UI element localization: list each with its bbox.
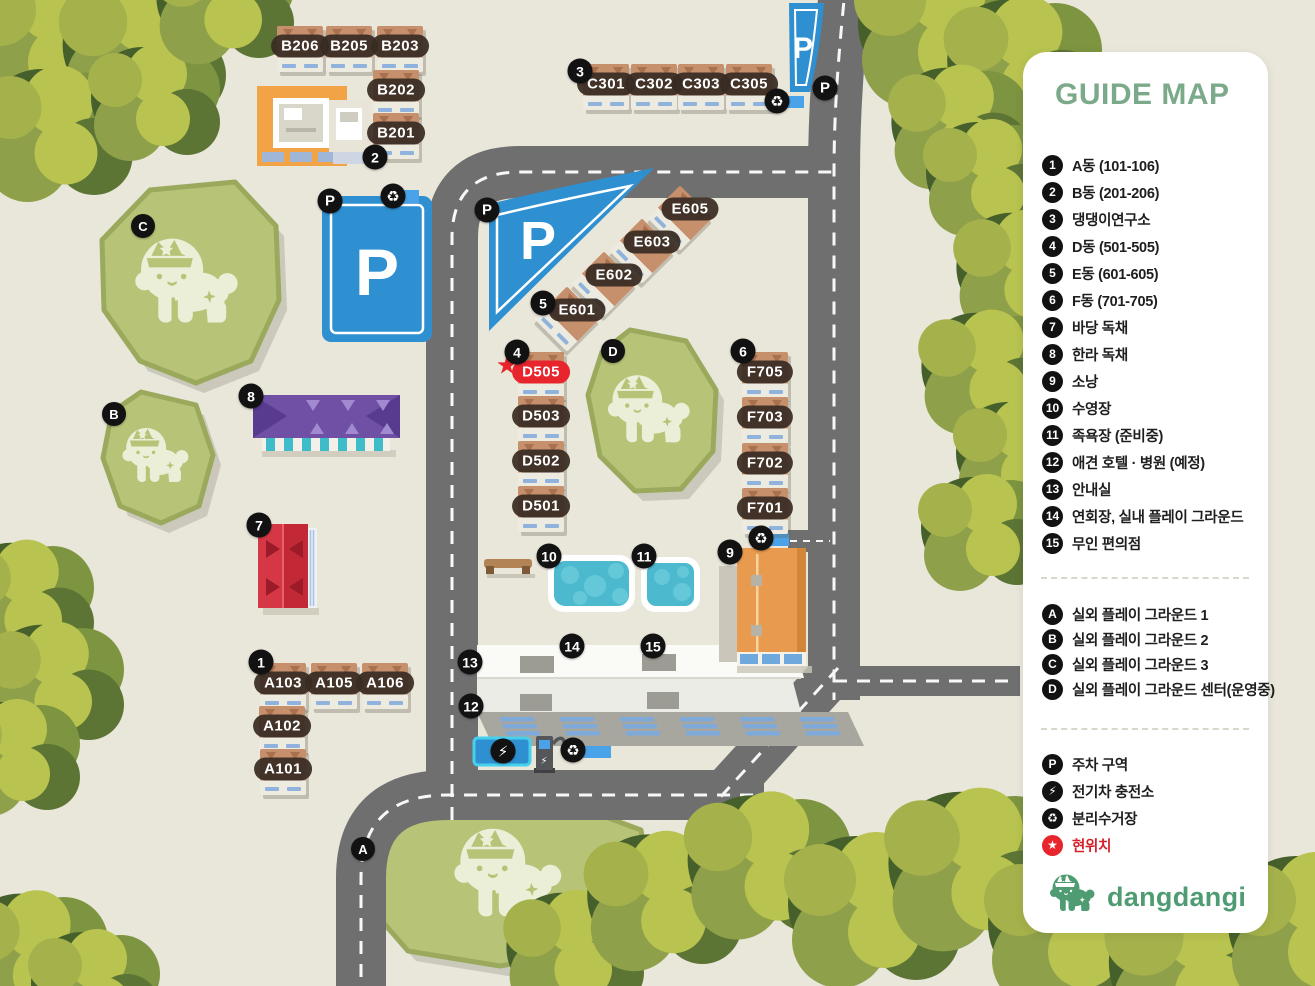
legend-item-5-icon: 5 bbox=[1042, 263, 1063, 284]
recycling-icon-3: ♻ bbox=[749, 526, 774, 551]
legend-item-a-label: 실외 플레이 그라운드 1 bbox=[1072, 604, 1208, 625]
legend-item-2: 2B동 (201-206) bbox=[1042, 181, 1159, 203]
cabin-label-E602: E602 bbox=[585, 264, 642, 287]
legend-item-current-location-icon: ★ bbox=[1042, 835, 1063, 856]
marker-13: 13 bbox=[458, 650, 483, 675]
cabin-label-A101: A101 bbox=[254, 758, 312, 781]
cabin-label-E603: E603 bbox=[623, 231, 680, 254]
legend-item-7: 7바당 독채 bbox=[1042, 316, 1128, 338]
legend-item-9: 9소낭 bbox=[1042, 370, 1098, 392]
legend-item-5: 5E동 (601-605) bbox=[1042, 262, 1158, 284]
legend-item-12-icon: 12 bbox=[1042, 452, 1063, 473]
ev-charger-icon-1: ⚡ bbox=[491, 739, 516, 764]
legend-item-parking-label: 주차 구역 bbox=[1072, 754, 1128, 775]
marker-7: 7 bbox=[247, 513, 272, 538]
recycling-icon-4: ♻ bbox=[561, 738, 586, 763]
legend-item-d-label: 실외 플레이 그라운드 센터(운영중) bbox=[1072, 679, 1275, 700]
legend-item-b-icon: B bbox=[1042, 629, 1063, 650]
brand-logo: dangdangi bbox=[1049, 870, 1246, 925]
legend-item-1: 1A동 (101-106) bbox=[1042, 154, 1159, 176]
marker-8: 8 bbox=[239, 384, 264, 409]
legend-item-9-icon: 9 bbox=[1042, 371, 1063, 392]
cabin-label-B202: B202 bbox=[367, 79, 425, 102]
guide-map-title: GUIDE MAP bbox=[1055, 78, 1230, 112]
marker-a: A bbox=[351, 837, 375, 861]
legend-item-d-icon: D bbox=[1042, 679, 1063, 700]
legend-item-c: C실외 플레이 그라운드 3 bbox=[1042, 653, 1208, 675]
legend-item-3-icon: 3 bbox=[1042, 209, 1063, 230]
guide-map-page: P P P bbox=[0, 0, 1315, 986]
legend-item-12: 12애견 호텔 · 병원 (예정) bbox=[1042, 451, 1205, 473]
cabin-label-B205: B205 bbox=[320, 35, 378, 58]
cabin-label-E601: E601 bbox=[548, 299, 605, 322]
cabin-label-A103: A103 bbox=[254, 672, 312, 695]
legend-item-10-icon: 10 bbox=[1042, 398, 1063, 419]
legend-item-ev-charger-icon: ⚡ bbox=[1042, 781, 1063, 802]
legend-item-a: A실외 플레이 그라운드 1 bbox=[1042, 603, 1208, 625]
marker-6: 6 bbox=[731, 339, 756, 364]
legend-item-10-label: 수영장 bbox=[1072, 398, 1111, 419]
cabin-label-B201: B201 bbox=[367, 122, 425, 145]
legend-item-4-icon: 4 bbox=[1042, 236, 1063, 257]
legend-item-8-label: 한라 독채 bbox=[1072, 344, 1128, 365]
legend-item-current-location-label: 현위치 bbox=[1072, 835, 1111, 856]
legend-item-15: 15무인 편의점 bbox=[1042, 532, 1141, 554]
legend-divider-2 bbox=[1041, 728, 1249, 730]
legend-item-b-label: 실외 플레이 그라운드 2 bbox=[1072, 629, 1208, 650]
legend-item-13-label: 안내실 bbox=[1072, 479, 1111, 500]
legend-item-3: 3댕댕이연구소 bbox=[1042, 208, 1150, 230]
legend-item-b: B실외 플레이 그라운드 2 bbox=[1042, 628, 1208, 650]
legend-item-parking: P주차 구역 bbox=[1042, 753, 1128, 775]
marker-11: 11 bbox=[632, 544, 657, 569]
cabin-label-F702: F702 bbox=[737, 452, 793, 475]
legend-item-15-label: 무인 편의점 bbox=[1072, 533, 1141, 554]
legend-item-7-icon: 7 bbox=[1042, 317, 1063, 338]
legend-item-current-location: ★현위치 bbox=[1042, 834, 1111, 856]
legend-item-recycling-label: 분리수거장 bbox=[1072, 808, 1137, 829]
marker-15: 15 bbox=[641, 634, 666, 659]
legend-item-1-label: A동 (101-106) bbox=[1072, 155, 1159, 176]
guide-panel: GUIDE MAP 1A동 (101-106)2B동 (201-206)3댕댕이… bbox=[1023, 52, 1268, 933]
map-overlay: A103A105A106A102A101B206B205B203B202B201… bbox=[0, 0, 1015, 986]
legend-item-14-label: 연회장, 실내 플레이 그라운드 bbox=[1072, 506, 1243, 527]
legend-item-2-label: B동 (201-206) bbox=[1072, 182, 1159, 203]
legend-item-1-icon: 1 bbox=[1042, 155, 1063, 176]
legend-item-5-label: E동 (601-605) bbox=[1072, 263, 1158, 284]
legend-item-4-label: D동 (501-505) bbox=[1072, 236, 1159, 257]
marker-2: 2 bbox=[363, 145, 388, 170]
legend-item-12-label: 애견 호텔 · 병원 (예정) bbox=[1072, 452, 1205, 473]
marker-d: D bbox=[601, 339, 625, 363]
marker-3: 3 bbox=[568, 59, 593, 84]
legend-item-6-icon: 6 bbox=[1042, 290, 1063, 311]
parking-badge-1: P bbox=[318, 189, 343, 214]
legend-item-recycling-icon: ♻ bbox=[1042, 808, 1063, 829]
legend-item-14: 14연회장, 실내 플레이 그라운드 bbox=[1042, 505, 1243, 527]
marker-12: 12 bbox=[459, 694, 484, 719]
cabin-label-A106: A106 bbox=[356, 672, 414, 695]
recycling-icon-1: ♻ bbox=[381, 184, 406, 209]
legend-item-8-icon: 8 bbox=[1042, 344, 1063, 365]
cabin-label-A105: A105 bbox=[305, 672, 363, 695]
legend-divider-1 bbox=[1041, 577, 1249, 579]
cabin-label-F705: F705 bbox=[737, 361, 793, 384]
legend-item-11-icon: 11 bbox=[1042, 425, 1063, 446]
marker-14: 14 bbox=[560, 634, 585, 659]
legend-item-11-label: 족욕장 (준비중) bbox=[1072, 425, 1163, 446]
legend-item-parking-icon: P bbox=[1042, 754, 1063, 775]
legend-item-2-icon: 2 bbox=[1042, 182, 1063, 203]
legend-item-14-icon: 14 bbox=[1042, 506, 1063, 527]
marker-9: 9 bbox=[718, 540, 743, 565]
legend-item-d: D실외 플레이 그라운드 센터(운영중) bbox=[1042, 678, 1275, 700]
legend-item-10: 10수영장 bbox=[1042, 397, 1111, 419]
cabin-label-D505: D505 bbox=[512, 361, 570, 384]
parking-badge-3: P bbox=[813, 76, 838, 101]
legend-item-7-label: 바당 독채 bbox=[1072, 317, 1128, 338]
legend-item-c-icon: C bbox=[1042, 654, 1063, 675]
marker-1: 1 bbox=[249, 650, 274, 675]
legend-item-9-label: 소낭 bbox=[1072, 371, 1098, 392]
legend-item-6-label: F동 (701-705) bbox=[1072, 290, 1158, 311]
legend-item-ev-charger: ⚡전기차 충전소 bbox=[1042, 780, 1154, 802]
marker-10: 10 bbox=[537, 544, 562, 569]
cabin-label-A102: A102 bbox=[253, 715, 311, 738]
legend-item-11: 11족욕장 (준비중) bbox=[1042, 424, 1163, 446]
legend-item-ev-charger-label: 전기차 충전소 bbox=[1072, 781, 1154, 802]
parking-badge-2: P bbox=[475, 198, 500, 223]
legend-item-3-label: 댕댕이연구소 bbox=[1072, 209, 1150, 230]
legend-item-recycling: ♻분리수거장 bbox=[1042, 807, 1137, 829]
recycling-icon-2: ♻ bbox=[765, 89, 790, 114]
marker-b: B bbox=[102, 402, 126, 426]
legend-item-13-icon: 13 bbox=[1042, 479, 1063, 500]
legend-item-15-icon: 15 bbox=[1042, 533, 1063, 554]
legend-item-c-label: 실외 플레이 그라운드 3 bbox=[1072, 654, 1208, 675]
cabin-label-D501: D501 bbox=[512, 495, 570, 518]
legend-item-13: 13안내실 bbox=[1042, 478, 1111, 500]
legend-item-a-icon: A bbox=[1042, 604, 1063, 625]
marker-c: C bbox=[131, 214, 155, 238]
cabin-label-B203: B203 bbox=[371, 35, 429, 58]
legend-item-6: 6F동 (701-705) bbox=[1042, 289, 1158, 311]
marker-4: 4 bbox=[505, 340, 530, 365]
legend-item-4: 4D동 (501-505) bbox=[1042, 235, 1159, 257]
cabin-label-D502: D502 bbox=[512, 450, 570, 473]
brand-logo-text: dangdangi bbox=[1107, 882, 1246, 913]
cabin-label-F703: F703 bbox=[737, 406, 793, 429]
cabin-label-E605: E605 bbox=[661, 198, 718, 221]
legend-item-8: 8한라 독채 bbox=[1042, 343, 1128, 365]
marker-5: 5 bbox=[531, 291, 556, 316]
dangdangi-dog-icon bbox=[1049, 870, 1099, 925]
cabin-label-F701: F701 bbox=[737, 497, 793, 520]
cabin-label-D503: D503 bbox=[512, 405, 570, 428]
